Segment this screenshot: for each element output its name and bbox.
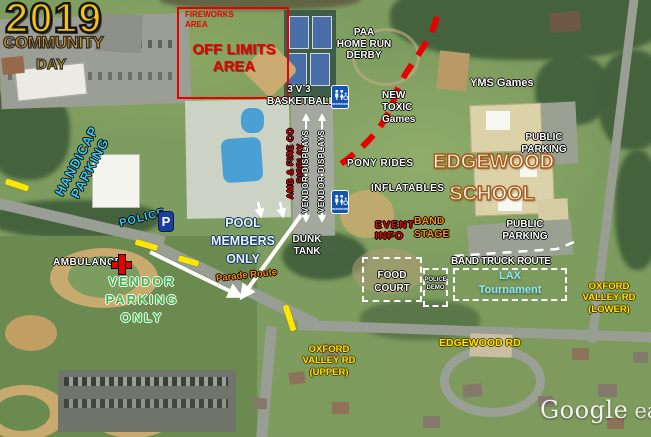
parking-letter: P xyxy=(162,214,171,229)
watermark-earth: earth xyxy=(634,399,651,423)
label-band-truck-route: BAND TRUCK ROUTE xyxy=(451,256,551,268)
label-vendor-displays: VENDOR DISPLAYS xyxy=(317,124,326,218)
label-paa-home-run-derby: PAA HOME RUN DERBY xyxy=(320,27,408,62)
community-day-event-map: 2019 COMMUNITY DAY FIREWORKS AREA OFF LI… xyxy=(0,0,651,437)
label-public-parking-lower: PUBLIC PARKING xyxy=(496,219,554,242)
label-lax-tournament: LAX Tournament xyxy=(453,270,567,298)
label-yms-games: YMS Games xyxy=(470,77,534,90)
label-band-stage: BAND STAGE xyxy=(414,215,449,240)
trees-patch xyxy=(615,150,651,270)
cross-bar xyxy=(118,254,126,275)
ambulance-cross-icon xyxy=(111,254,132,275)
label-edgewood-rd: EDGEWOOD RD xyxy=(439,337,521,349)
dirt-oval xyxy=(5,315,57,351)
dirt-patch xyxy=(436,51,470,92)
restroom-icon: RESTROOM xyxy=(331,190,349,214)
restroom-icon: RESTROOM xyxy=(331,85,349,109)
title-day: DAY xyxy=(36,56,66,73)
house xyxy=(633,352,648,363)
roof-section xyxy=(486,111,510,130)
restroom-caption: RESTROOM xyxy=(331,208,348,211)
restroom-figures-icon xyxy=(333,194,348,207)
label-new-toxic-games: NEW TOXIC Games xyxy=(382,90,415,126)
restroom-caption: RESTROOM xyxy=(331,103,348,106)
house xyxy=(332,402,349,414)
swimming-pool xyxy=(221,137,264,184)
label-dunk-tank: DUNK TANK xyxy=(287,234,327,258)
swimming-pool xyxy=(241,108,264,133)
label-3v3-basketball: 3 V 3 BASKETBALL xyxy=(267,84,331,107)
restroom-figures-icon xyxy=(333,89,348,102)
building xyxy=(1,56,25,75)
parked-cars-row xyxy=(64,377,228,386)
label-pony-rides: PONY RIDES xyxy=(347,158,414,170)
parked-cars-row xyxy=(64,399,228,408)
tennis-court xyxy=(289,16,309,49)
label-edgewood-school: EDGEWOOD SCHOOL xyxy=(433,146,551,210)
label-off-limits-area: OFF LIMITS AREA xyxy=(178,42,290,75)
house xyxy=(462,383,482,398)
house xyxy=(252,397,268,409)
label-oxford-valley-rd-lower: OXFORD VALLEY RD (LOWER) xyxy=(574,281,644,315)
title-community: COMMUNITY xyxy=(3,33,103,53)
label-food-court: FOOD COURT xyxy=(362,269,422,295)
watermark-google: Google xyxy=(540,396,628,424)
label-public-parking-upper: PUBLIC PARKING xyxy=(512,132,576,155)
label-vendor-displays: VENDOR DISPLAYS xyxy=(301,124,310,218)
label-event-info: EVENT INFO xyxy=(375,220,415,242)
label-police-demo: POLICE DEMO xyxy=(423,277,448,293)
label-fireworks-area: FIREWORKS AREA xyxy=(185,10,234,29)
house xyxy=(572,348,589,360)
parking-sign-icon: P xyxy=(158,211,174,232)
label-oxford-valley-rd-upper: OXFORD VALLEY RD (UPPER) xyxy=(298,344,360,378)
label-pool-members-only: POOL MEMBERS ONLY xyxy=(211,214,275,268)
house xyxy=(423,416,440,428)
label-vendor-parking-only: VENDOR PARKING ONLY xyxy=(90,273,194,328)
google-earth-watermark: Google earth xyxy=(540,396,651,424)
house xyxy=(549,11,580,33)
